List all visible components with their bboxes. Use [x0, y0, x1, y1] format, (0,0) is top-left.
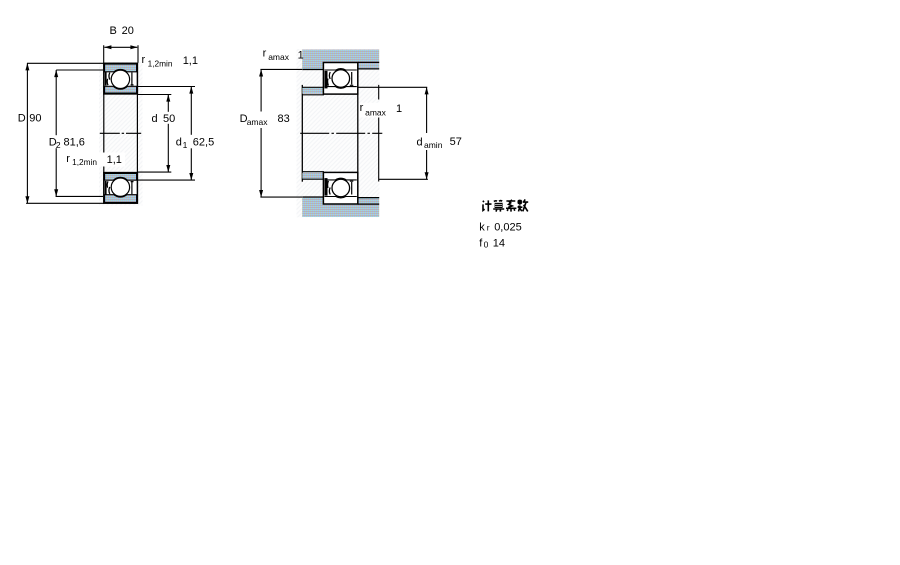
svg-text:1: 1 — [183, 140, 188, 150]
svg-text:50: 50 — [163, 113, 175, 125]
svg-text:amin: amin — [424, 140, 443, 150]
svg-text:0,025: 0,025 — [494, 221, 522, 233]
svg-text:B: B — [110, 25, 117, 37]
svg-text:1,2min: 1,2min — [148, 59, 173, 69]
svg-text:d: d — [176, 137, 182, 149]
svg-text:1,1: 1,1 — [183, 55, 198, 67]
svg-text:2: 2 — [56, 140, 61, 150]
svg-text:k: k — [479, 221, 485, 233]
svg-text:d: d — [417, 136, 423, 148]
svg-text:1: 1 — [298, 49, 304, 61]
svg-text:14: 14 — [493, 237, 505, 249]
svg-text:1,2min: 1,2min — [72, 157, 97, 167]
svg-text:20: 20 — [122, 25, 134, 37]
svg-text:r: r — [142, 54, 146, 66]
svg-text:1: 1 — [396, 103, 402, 115]
svg-text:r: r — [487, 223, 490, 233]
svg-text:d: d — [152, 113, 158, 125]
svg-text:83: 83 — [278, 113, 290, 125]
svg-text:amax: amax — [268, 52, 290, 62]
svg-text:57: 57 — [450, 136, 462, 148]
svg-text:0: 0 — [484, 240, 489, 250]
svg-text:90: 90 — [29, 113, 41, 125]
svg-text:amax: amax — [365, 107, 387, 117]
svg-text:f: f — [479, 237, 483, 249]
svg-text:r: r — [66, 153, 70, 165]
svg-text:81,6: 81,6 — [64, 136, 85, 148]
svg-text:amax: amax — [247, 117, 269, 127]
svg-text:62,5: 62,5 — [193, 137, 214, 149]
svg-text:r: r — [263, 48, 267, 60]
svg-text:1,1: 1,1 — [107, 154, 122, 166]
svg-text:D: D — [18, 113, 26, 125]
svg-text:r: r — [360, 102, 364, 114]
